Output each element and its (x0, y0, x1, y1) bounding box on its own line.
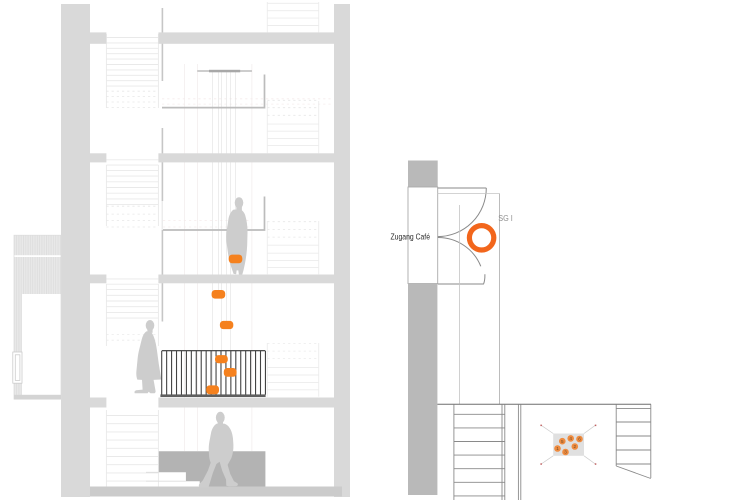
svg-text:2: 2 (574, 444, 577, 449)
svg-text:3: 3 (564, 450, 567, 455)
svg-text:5: 5 (561, 439, 564, 444)
svg-text:1: 1 (556, 446, 559, 451)
svg-text:6: 6 (578, 437, 581, 442)
svg-text:Zugang Café: Zugang Café (391, 231, 431, 241)
svg-text:4: 4 (569, 436, 572, 441)
svg-text:SG I: SG I (498, 214, 513, 223)
